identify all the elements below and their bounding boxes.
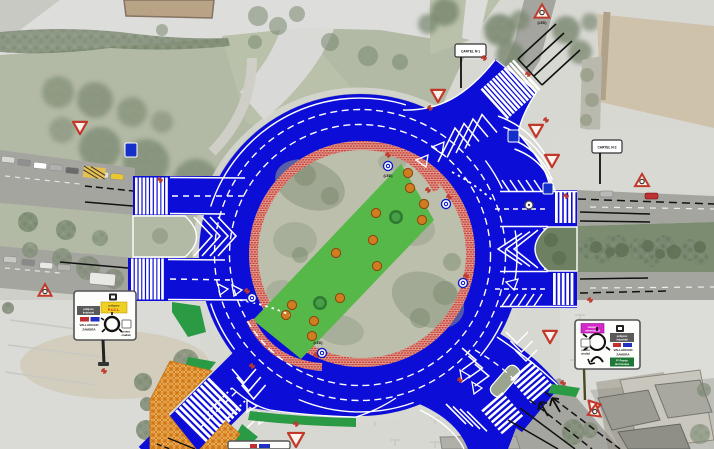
svg-text:polígono: polígono [109, 304, 120, 308]
svg-text:VALLADOLID: VALLADOLID [613, 348, 633, 352]
svg-text:ZAMORA: ZAMORA [616, 353, 630, 357]
svg-text:CARTEL Nº1: CARTEL Nº1 [461, 50, 480, 54]
svg-text:ZAMORA: ZAMORA [82, 328, 96, 332]
svg-text:CARTEL Nº2: CARTEL Nº2 [598, 146, 617, 150]
svg-text:(LED): (LED) [537, 21, 546, 25]
svg-text:universidad: universidad [585, 329, 600, 333]
svg-text:ciudad: ciudad [121, 333, 130, 337]
svg-text:P.4.C.L.: P.4.C.L. [108, 308, 120, 312]
svg-text:VALLADOLID: VALLADOLID [79, 323, 99, 327]
svg-text:ciudad: ciudad [581, 352, 590, 356]
svg-text:industrial: industrial [83, 312, 95, 315]
svg-text:(LED): (LED) [313, 341, 322, 345]
svg-text:(LED): (LED) [383, 174, 392, 178]
svg-text:del Arenque: del Arenque [615, 363, 630, 366]
svg-text:industrial: industrial [616, 339, 628, 342]
